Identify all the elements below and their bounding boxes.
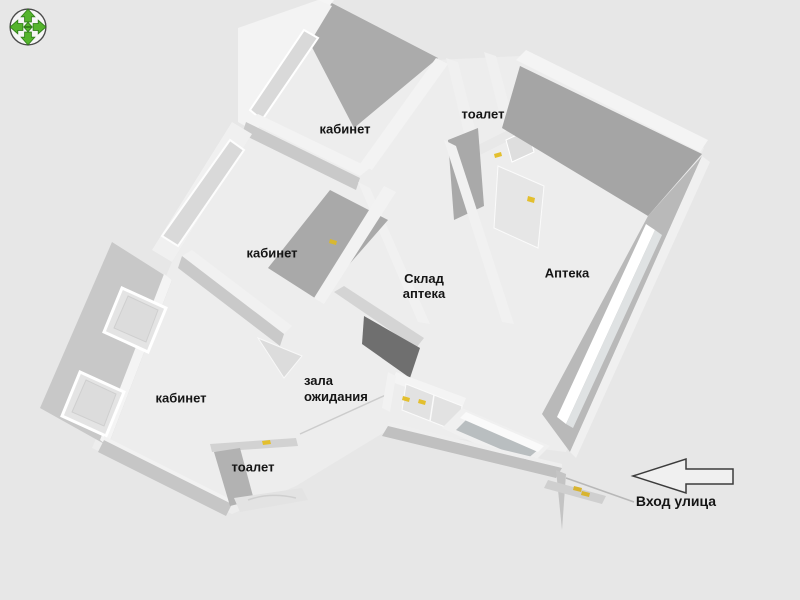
label-entrance-street: Вход улица <box>636 493 716 509</box>
floorplan-3d-view <box>0 0 800 600</box>
label-sklad-line2: аптека <box>403 286 445 301</box>
label-kabinet-bottom: кабинет <box>155 391 206 406</box>
floorplan-stage: кабинет тоалет кабинет Склад аптека Апте… <box>0 0 800 600</box>
label-toalet-bottom: тоалет <box>232 460 275 475</box>
label-zala-line1: зала <box>304 373 368 389</box>
label-zala-line2: ожидания <box>304 389 368 405</box>
label-sklad-line1: Склад <box>403 271 445 286</box>
outside-step <box>544 480 606 504</box>
street-entrance-arrow <box>633 459 733 493</box>
label-apteka: Аптека <box>545 266 590 281</box>
label-toalet-top: тоалет <box>462 107 505 122</box>
label-zala: зала ожидания <box>304 373 368 405</box>
label-kabinet-top: кабинет <box>319 122 370 137</box>
pan-control-icon[interactable] <box>5 4 51 50</box>
building-corner-taper <box>556 470 566 530</box>
label-sklad: Склад аптека <box>403 271 445 301</box>
label-kabinet-middle: кабинет <box>246 246 297 261</box>
